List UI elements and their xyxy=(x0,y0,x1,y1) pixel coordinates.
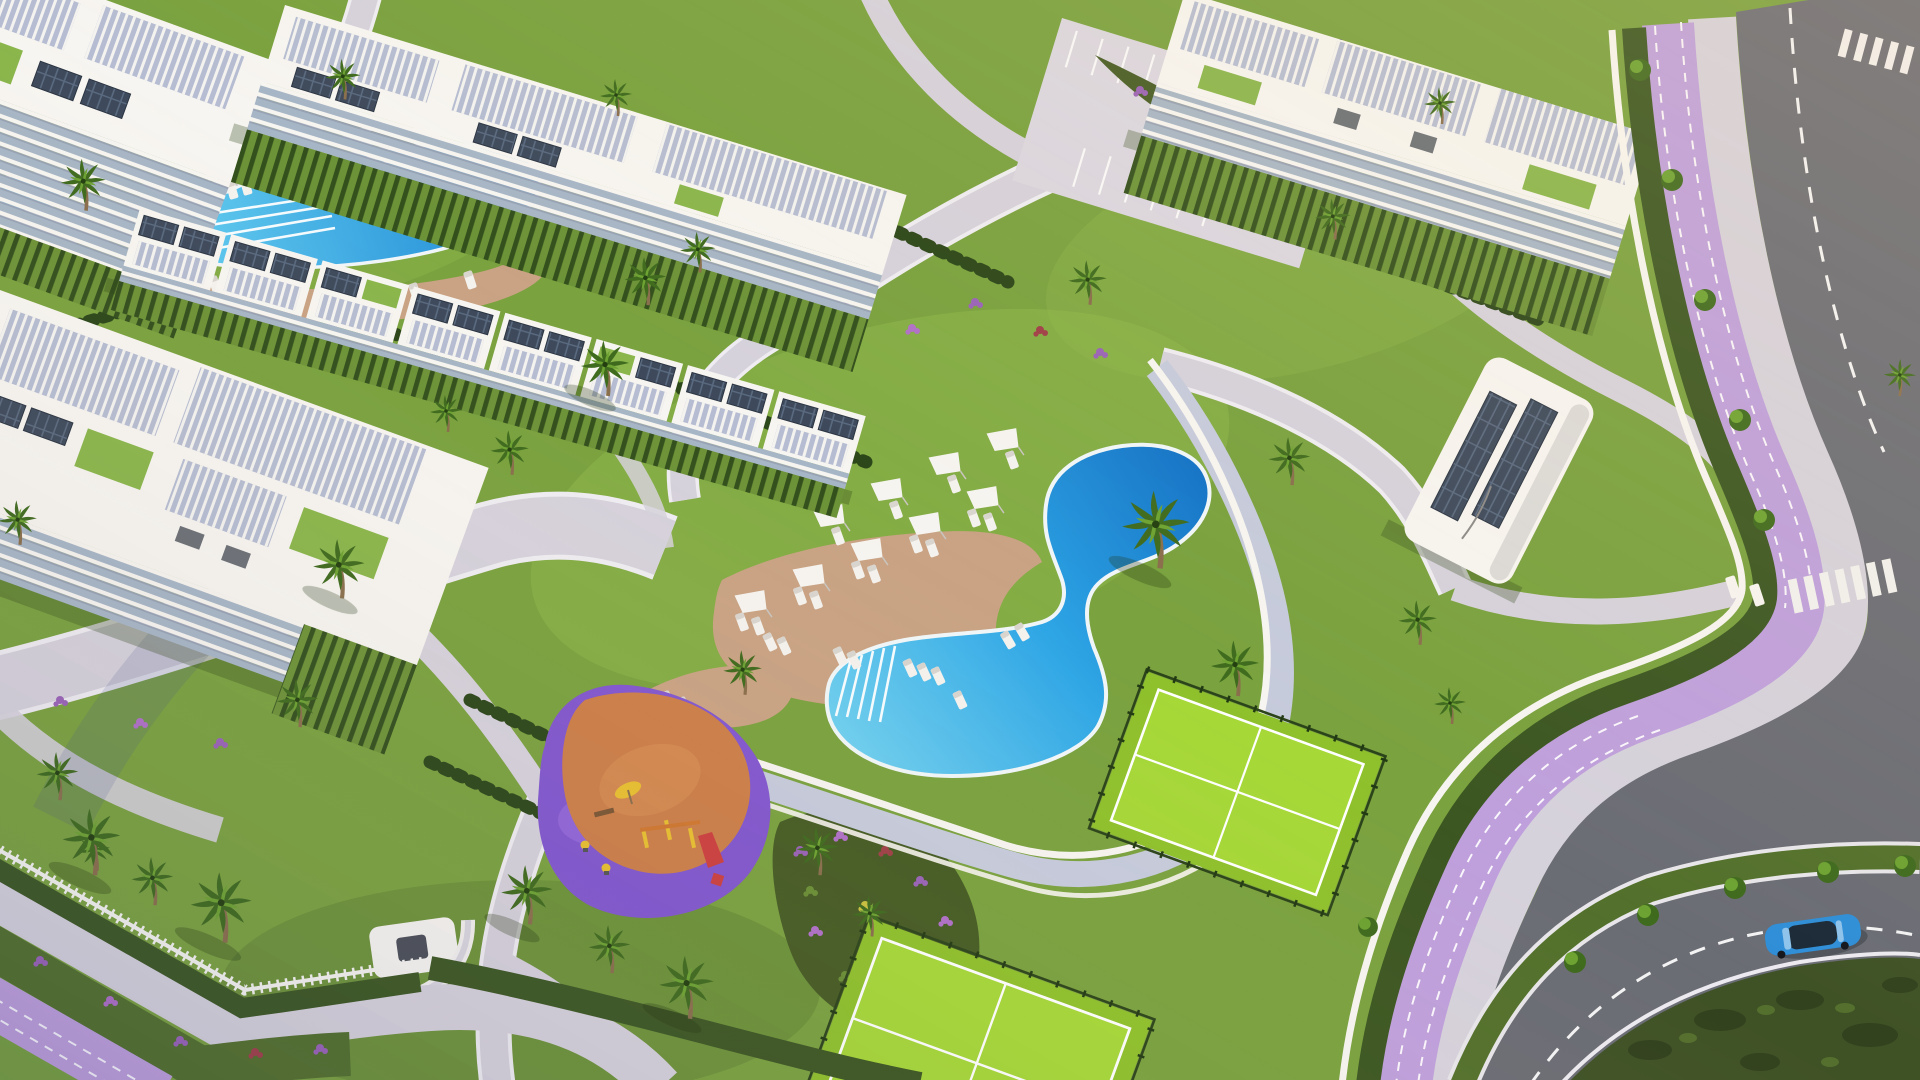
atmosphere-overlay xyxy=(0,0,1920,1080)
render-viewport: Lawned resort grounds Winding light-grey… xyxy=(0,0,1920,1080)
resort-aerial-render: Lawned resort grounds Winding light-grey… xyxy=(0,0,1920,1080)
